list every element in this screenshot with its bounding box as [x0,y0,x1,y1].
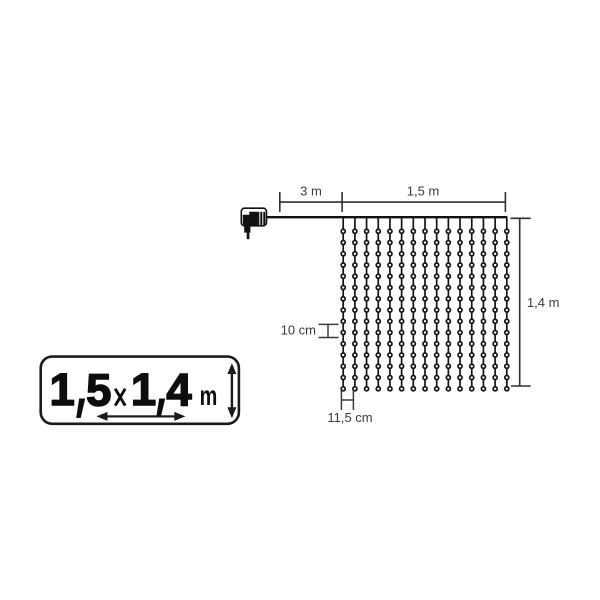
svg-text:m: m [200,381,218,412]
svg-text:1,5 m: 1,5 m [407,184,440,199]
svg-text:1: 1 [131,364,156,415]
svg-text:5: 5 [86,365,111,416]
svg-text:1: 1 [50,364,75,415]
svg-text:10 cm: 10 cm [281,322,316,337]
svg-text:1,4 m: 1,4 m [527,295,560,310]
svg-text:11,5 cm: 11,5 cm [327,410,372,425]
svg-text:3 m: 3 m [300,184,322,199]
svg-text:4: 4 [166,365,192,416]
